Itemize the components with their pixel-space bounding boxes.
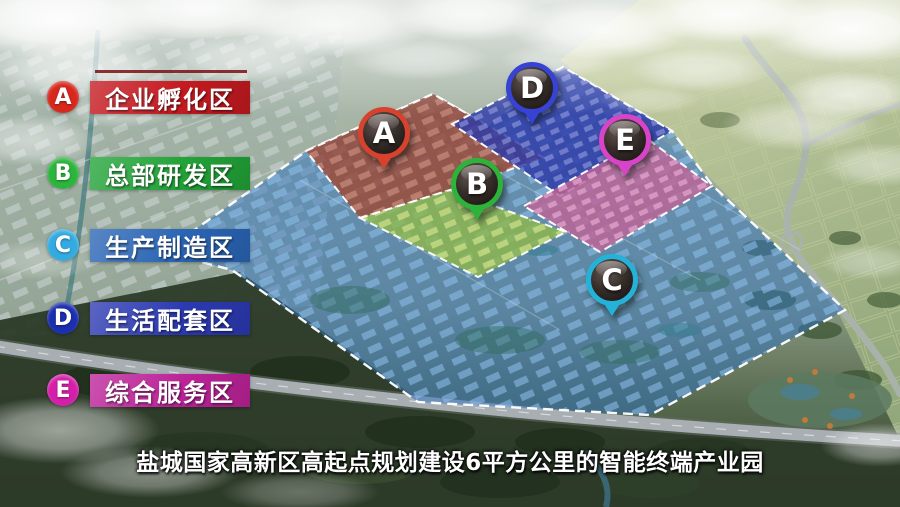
legend-label-a: 企业孵化区 — [105, 80, 235, 115]
legend-item-e: E 综合服务区 — [47, 373, 250, 407]
legend-circle-d: D — [47, 302, 79, 334]
legend-label-d: 生活配套区 — [105, 301, 235, 336]
map-pin-b-head: B — [451, 158, 503, 210]
caption-text: 盐城国家高新区高起点规划建设6平方公里的智能终端产业园 — [0, 443, 900, 477]
map-pin-b: B — [451, 158, 503, 220]
legend-label-b: 总部研发区 — [105, 156, 235, 191]
legend-label-c: 生产制造区 — [105, 228, 235, 263]
map-pin-c: C — [586, 254, 638, 316]
map-pin-a-head: A — [358, 107, 410, 159]
legend-item-d: D 生活配套区 — [47, 301, 250, 335]
map-pin-a-letter: A — [373, 119, 395, 148]
legend-circle-e: E — [47, 374, 79, 406]
map-pin-b-letter: B — [466, 170, 488, 199]
legend-banner-e: 综合服务区 — [90, 374, 250, 407]
legend-banner-d: 生活配套区 — [90, 302, 250, 335]
map-pin-d-letter: D — [520, 74, 544, 103]
legend-banner-c: 生产制造区 — [90, 229, 250, 262]
map-pin-e-head: E — [599, 114, 651, 166]
legend-banner-b: 总部研发区 — [90, 157, 250, 190]
map-pin-d-head: D — [506, 62, 558, 114]
map-pin-e-letter: E — [615, 126, 635, 155]
map-pin-d: D — [506, 62, 558, 124]
screenshot-frame: A B C D E A 企业孵化区 B 总部研发区 — [0, 0, 900, 507]
map-pin-c-letter: C — [601, 266, 622, 295]
banner-edge-artifact — [95, 70, 247, 73]
legend-item-c: C 生产制造区 — [47, 228, 250, 262]
legend-item-a: A 企业孵化区 — [47, 80, 250, 114]
legend-banner-a: 企业孵化区 — [90, 81, 250, 114]
map-pin-e: E — [599, 114, 651, 176]
legend-label-e: 综合服务区 — [105, 373, 235, 408]
map-pin-c-head: C — [586, 254, 638, 306]
legend-circle-b: B — [47, 157, 79, 189]
legend-circle-c: C — [47, 229, 79, 261]
legend-circle-a: A — [47, 81, 79, 113]
map-pin-a: A — [358, 107, 410, 169]
legend-item-b: B 总部研发区 — [47, 156, 250, 190]
